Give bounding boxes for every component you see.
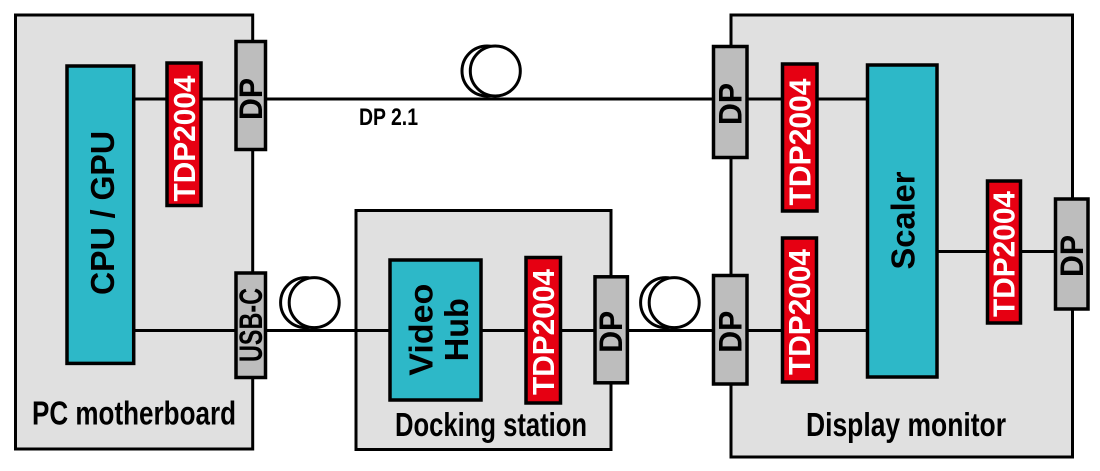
svg-text:Video: Video xyxy=(402,284,439,376)
svg-text:Hub: Hub xyxy=(438,298,475,361)
svg-text:DP 2.1: DP 2.1 xyxy=(359,104,418,131)
svg-text:Display monitor: Display monitor xyxy=(806,406,1006,443)
svg-text:CPU / GPU: CPU / GPU xyxy=(84,131,121,295)
svg-text:TDP2004: TDP2004 xyxy=(782,78,817,206)
svg-text:PC motherboard: PC motherboard xyxy=(32,395,236,432)
svg-text:DP: DP xyxy=(233,78,269,120)
svg-text:Scaler: Scaler xyxy=(885,171,922,269)
svg-text:USB-C: USB-C xyxy=(233,288,269,362)
svg-text:TDP2004: TDP2004 xyxy=(987,190,1022,317)
svg-text:DP: DP xyxy=(712,311,748,353)
svg-text:TDP2004: TDP2004 xyxy=(782,248,817,375)
svg-text:DP: DP xyxy=(712,83,748,125)
svg-text:DP: DP xyxy=(1054,235,1090,277)
svg-text:DP: DP xyxy=(593,311,629,353)
svg-text:TDP2004: TDP2004 xyxy=(167,75,202,202)
svg-text:Docking station: Docking station xyxy=(395,406,587,443)
svg-text:TDP2004: TDP2004 xyxy=(526,268,561,395)
